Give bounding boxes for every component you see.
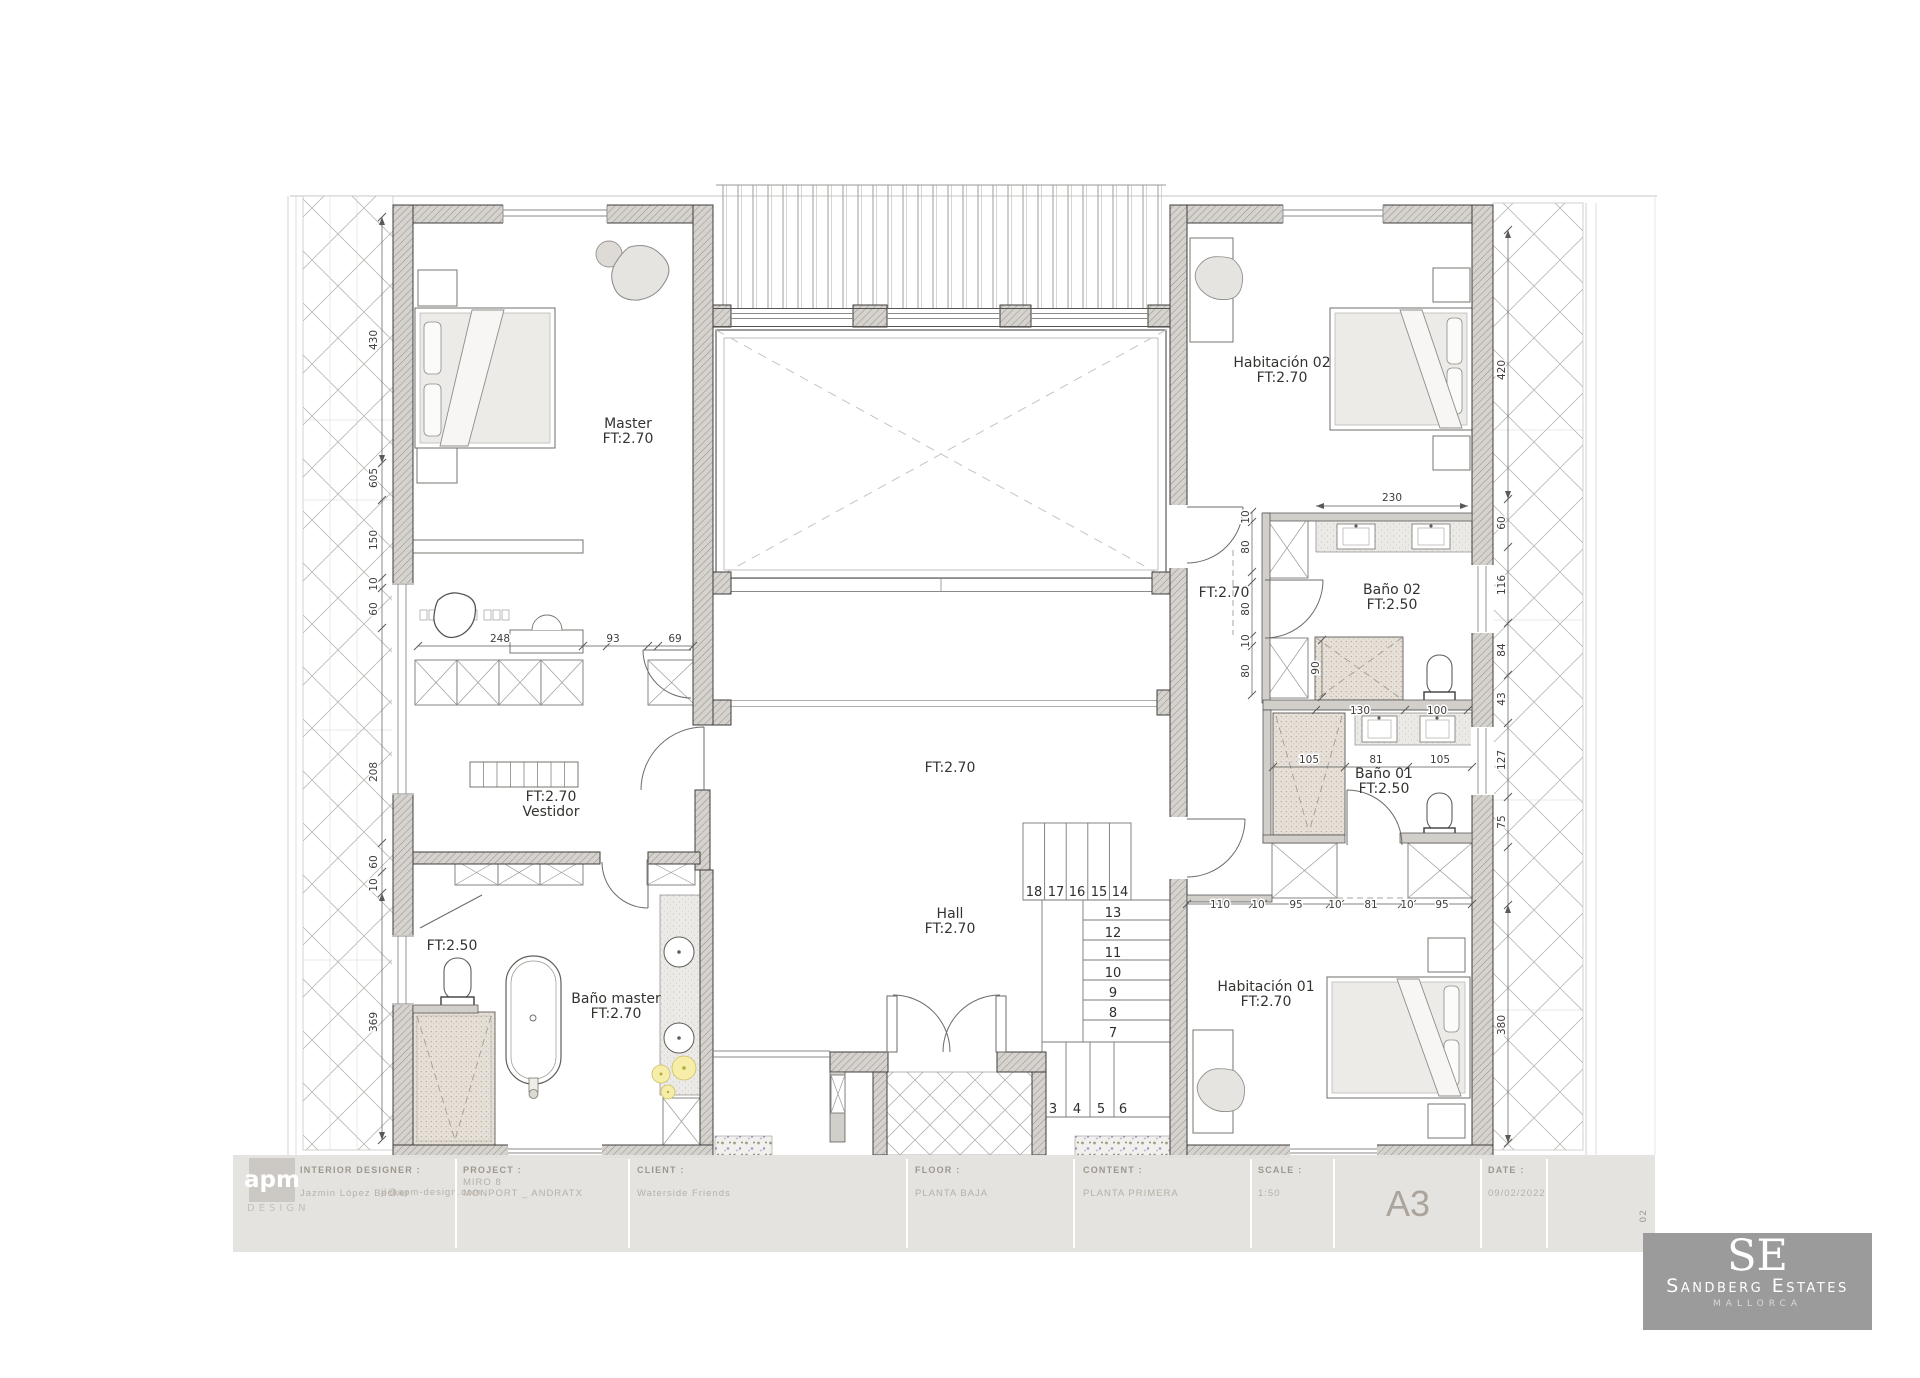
se-logo-location: MALLORCA (1713, 1299, 1802, 1309)
room-label-master: Master (604, 416, 652, 432)
shelf-unit (470, 762, 578, 787)
field-content: CONTENT : PLANTA PRIMERA (1083, 1155, 1243, 1252)
room-label-master-ft: FT:2.70 (603, 431, 654, 447)
stair-number: 7 (1109, 1026, 1117, 1041)
dim-label: 95 (1435, 899, 1448, 911)
dim-label: 80 (1240, 540, 1252, 553)
console (510, 630, 583, 653)
dim-label: 81 (1369, 754, 1382, 766)
content-value: PLANTA PRIMERA (1083, 1188, 1243, 1199)
field-label: CONTENT : (1083, 1155, 1243, 1175)
room-habitacion-02 (1190, 238, 1472, 470)
dim-label: 10 (1240, 634, 1252, 647)
nightstand (417, 448, 457, 483)
separator (628, 1159, 630, 1248)
wardrobes (1272, 843, 1472, 898)
field-floor: FLOOR : PLANTA BAJA (915, 1155, 1065, 1252)
wc-door-leaf (420, 895, 482, 928)
room-label-vestidor: Vestidor (523, 804, 580, 820)
stair-number: 6 (1119, 1102, 1127, 1117)
pouf (431, 590, 479, 640)
central-void (716, 330, 1166, 578)
dim-label: 80 (1240, 664, 1252, 677)
separator (1250, 1159, 1252, 1248)
dim-label: 105 (1299, 754, 1319, 766)
vanity-bano02 (1316, 520, 1472, 552)
toilet-master (441, 958, 474, 1009)
sheet-size-text: A3 (1386, 1183, 1430, 1225)
field-client: CLIENT : Waterside Friends (637, 1155, 897, 1252)
dim-label: 60 (368, 602, 380, 615)
date-value: 09/02/2022 (1488, 1188, 1546, 1199)
stair-number: 11 (1105, 946, 1122, 961)
separator (1073, 1159, 1075, 1248)
field-label: FLOOR : (915, 1155, 1065, 1175)
room-label-bano-master-ft: FT:2.70 (591, 1006, 642, 1022)
stair-number: 18 (1026, 885, 1043, 900)
stair-number: 5 (1097, 1102, 1105, 1117)
field-designer-email: jl@apm-design.com (381, 1155, 461, 1252)
dim-label: 430 (368, 330, 380, 350)
scale-value: 1:50 (1258, 1188, 1328, 1199)
field-scale: SCALE : 1:50 (1258, 1155, 1328, 1252)
room-label-hab02: Habitación 02 (1233, 355, 1330, 371)
dim-label: 100 (1427, 705, 1447, 717)
pergola-slats (716, 185, 1166, 308)
wardrobes (415, 660, 695, 705)
room-label-bano02: Baño 02 (1363, 582, 1421, 598)
dim-label: 95 (1289, 899, 1302, 911)
field-project: PROJECT : MIRO 8 MONPORT _ ANDRATX (463, 1155, 623, 1252)
vanity-bano01 (1355, 713, 1472, 745)
stair-number: 10 (1105, 966, 1122, 981)
dim-label: 150 (368, 530, 380, 550)
project-line2: MONPORT _ ANDRATX (463, 1188, 623, 1199)
separator (1480, 1159, 1482, 1248)
dim-label: 105 (1430, 754, 1450, 766)
stair-number: 3 (1049, 1102, 1057, 1117)
title-block: apm DESIGN INTERIOR DESIGNER : Jazmin Ló… (233, 1155, 1655, 1252)
nightstand (1428, 938, 1465, 972)
dim-label: 93 (606, 633, 619, 645)
room-label-vestidor-ft: FT:2.70 (526, 789, 577, 805)
field-label: DATE : (1488, 1155, 1546, 1175)
designer-email: jl@apm-design.com (381, 1187, 461, 1198)
room-label-hab01: Habitación 01 (1217, 979, 1314, 995)
field-label: SCALE : (1258, 1155, 1328, 1175)
toilet-bano01 (1424, 793, 1455, 839)
shower-master (413, 1012, 495, 1145)
nightstand (418, 270, 457, 306)
stair-number: 8 (1109, 1006, 1117, 1021)
apm-logo-text: apm (244, 1167, 300, 1193)
se-logo-initials: SE (1727, 1235, 1788, 1278)
dim-label: 84 (1496, 643, 1508, 657)
dim-label: 208 (368, 762, 380, 782)
shower-bano02 (1315, 637, 1403, 700)
room-label-hall-ft: FT:2.70 (925, 921, 976, 937)
stair-number: 16 (1069, 885, 1086, 900)
dim-label: 81 (1364, 899, 1377, 911)
apm-logo: apm (249, 1158, 295, 1202)
se-logo: SE Sandberg Estates MALLORCA (1643, 1233, 1872, 1330)
stool (532, 615, 562, 630)
dim-label: 10 (1240, 510, 1252, 523)
project-line1: MIRO 8 (463, 1177, 623, 1188)
dim-label: 230 (1382, 492, 1402, 504)
field-date: DATE : 09/02/2022 (1488, 1155, 1546, 1252)
room-label-hab01-ft: FT:2.70 (1241, 994, 1292, 1010)
separator (1546, 1159, 1548, 1248)
entrance-double-door (887, 995, 1006, 1052)
dim-label: 130 (1350, 705, 1370, 717)
dimension-wing-bottom: 110 10 95 10 81 10 95 (1183, 899, 1476, 911)
dim-label: 605 (368, 468, 380, 488)
stair-number: 9 (1109, 986, 1117, 1001)
stair-number: 13 (1105, 906, 1122, 921)
room-label-bano01: Baño 01 (1355, 766, 1413, 782)
credenza (413, 540, 583, 553)
sheet-size: A3 (1336, 1155, 1480, 1252)
client-value: Waterside Friends (637, 1188, 897, 1199)
dim-label: 380 (1496, 1015, 1508, 1035)
stair-number: 14 (1112, 885, 1129, 900)
separator (906, 1159, 908, 1248)
dim-label: 10 (368, 577, 380, 590)
bed-hab02 (1330, 308, 1472, 430)
bed-master (415, 308, 555, 448)
dim-label: 110 (1210, 899, 1230, 911)
room-label-corridor-ft: FT:2.70 (1199, 585, 1250, 601)
room-bano-01 (1272, 713, 1472, 898)
room-label-bano01-ft: FT:2.50 (1359, 781, 1410, 797)
separator (1333, 1159, 1335, 1248)
separator (455, 1159, 457, 1248)
room-label-hall: Hall (937, 906, 964, 922)
entry-paving (887, 1072, 1032, 1155)
dim-label: 420 (1496, 360, 1508, 380)
toilet-bano02 (1424, 655, 1455, 703)
dim-label: 80 (1240, 602, 1252, 615)
dim-label: 10 (1251, 899, 1264, 911)
dim-label: 248 (490, 633, 510, 645)
dim-label: 69 (668, 633, 681, 645)
dim-label: 116 (1496, 575, 1508, 595)
field-label: PROJECT : (463, 1155, 623, 1175)
room-label-wc-ft: FT:2.50 (427, 938, 478, 954)
dim-label: 60 (368, 855, 380, 868)
dim-label: 10 (1400, 899, 1413, 911)
page: { "rooms": { "master": {"name": "Master"… (0, 0, 1920, 1378)
stair-number: 4 (1073, 1102, 1081, 1117)
bed-hab01 (1327, 977, 1470, 1098)
hall-closet (831, 1075, 845, 1113)
nightstand (1433, 268, 1470, 302)
room-label-void-ft: FT:2.70 (925, 760, 976, 776)
room-habitacion-01 (1193, 938, 1470, 1138)
room-label-hab02-ft: FT:2.70 (1257, 370, 1308, 386)
dim-label: 10 (1328, 899, 1341, 911)
dim-label: 90 (1310, 661, 1322, 674)
field-label: CLIENT : (637, 1155, 897, 1175)
hall (716, 578, 1166, 707)
dim-label: 127 (1496, 750, 1508, 770)
dim-label: 369 (368, 1012, 380, 1032)
se-logo-name: Sandberg Estates (1666, 1276, 1848, 1297)
nightstand (1433, 436, 1470, 470)
room-label-bano02-ft: FT:2.50 (1367, 597, 1418, 613)
stair-number: 12 (1105, 926, 1122, 941)
stair-number: 15 (1091, 885, 1108, 900)
dim-label: 75 (1496, 815, 1508, 828)
dim-label: 60 (1496, 516, 1508, 529)
floor-value: PLANTA BAJA (915, 1188, 1065, 1199)
dim-label: 10 (368, 878, 380, 891)
revision-number: 02 (1639, 1209, 1649, 1222)
bathtub (506, 956, 561, 1099)
wardrobes (1266, 518, 1308, 698)
shower-bano01 (1273, 713, 1345, 835)
room-label-bano-master: Baño master (571, 991, 661, 1007)
stair-number: 17 (1048, 885, 1065, 900)
nightstand (1428, 1104, 1465, 1138)
dim-label: 43 (1496, 692, 1508, 705)
